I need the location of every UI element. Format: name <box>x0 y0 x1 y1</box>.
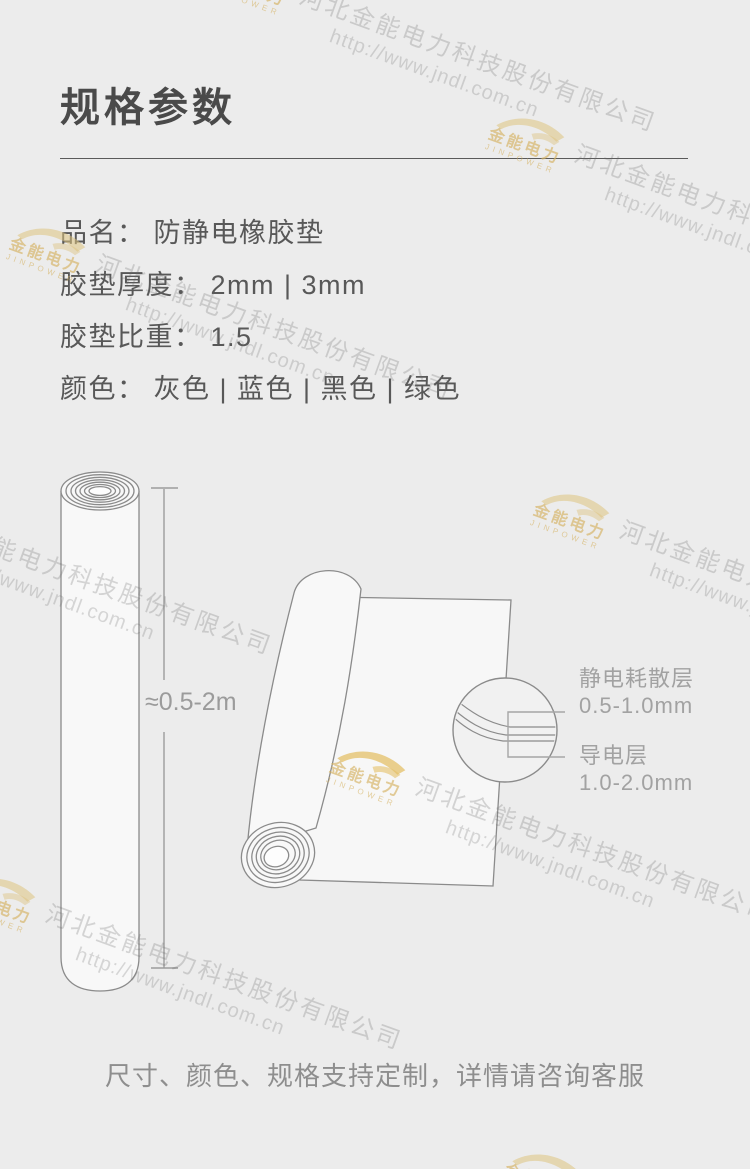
watermark-url-text: http://www.jndl.com.cn <box>601 182 750 321</box>
customization-note: 尺寸、颜色、规格支持定制，详情请咨询客服 <box>0 1058 750 1094</box>
layer-range: 1.0-2.0mm <box>579 769 693 796</box>
product-spec-page: 规格参数 品名：防静电橡胶垫 胶垫厚度：2mm | 3mm 胶垫比重：1.5 颜… <box>0 0 750 1169</box>
spec-label: 胶垫厚度： <box>60 270 203 300</box>
watermark-company-text: 河北金能电力科技股份有限公司 <box>570 141 750 297</box>
spec-label: 胶垫比重： <box>60 322 203 352</box>
spec-label: 品名： <box>60 218 146 248</box>
spec-value: 1.5 <box>211 322 253 352</box>
standing-roll-drawing <box>61 472 139 991</box>
jinpower-logo-icon: 金能电力 JINPOWER <box>495 1136 592 1169</box>
spec-row-thickness: 胶垫厚度：2mm | 3mm <box>60 271 461 300</box>
watermark-company-text: 河北金能电力科技股份有限公司 <box>295 0 660 138</box>
watermark-url-text: http://www.jndl.com.cn <box>326 24 651 163</box>
layer-annotation-dissipative: 静电耗散层 0.5-1.0mm <box>579 665 694 719</box>
length-dimension-line <box>151 488 178 968</box>
layer-name: 静电耗散层 <box>579 665 694 692</box>
length-dimension-label: ≈0.5-2m <box>145 688 237 717</box>
spec-label: 颜色： <box>60 374 146 404</box>
jinpower-logo-icon: 金能电力 JINPOWER <box>204 0 301 21</box>
product-diagram: ≈0.5-2m 静电耗散层 0.5-1.0mm 导电层 1.0-2.0mm <box>0 440 750 1010</box>
spec-value: 2mm | 3mm <box>211 270 367 300</box>
spec-row-density: 胶垫比重：1.5 <box>60 323 461 352</box>
page-title: 规格参数 <box>60 84 236 132</box>
mat-line-drawing <box>0 440 750 1010</box>
jinpower-logo-icon: 金能电力 JINPOWER <box>479 100 576 179</box>
watermark-tile: 金能电力 JINPOWER 河北金能电力科技股份有限公司 http://www.… <box>475 100 750 321</box>
watermark-tile: 金能电力 JINPOWER 河北金能电力科技股份有限公司 http://www.… <box>491 1136 750 1169</box>
layer-range: 0.5-1.0mm <box>579 692 694 719</box>
layer-name: 导电层 <box>579 742 693 769</box>
title-divider <box>60 158 688 159</box>
spec-row-colors: 颜色：灰色 | 蓝色 | 黑色 | 绿色 <box>60 375 461 404</box>
spec-row-product-name: 品名：防静电橡胶垫 <box>60 219 461 248</box>
spec-value: 灰色 | 蓝色 | 黑色 | 绿色 <box>154 374 462 404</box>
watermark-tile: 金能电力 JINPOWER 河北金能电力科技股份有限公司 http://www.… <box>200 0 664 163</box>
layer-annotation-conductive: 导电层 1.0-2.0mm <box>579 742 693 796</box>
spec-list: 品名：防静电橡胶垫 胶垫厚度：2mm | 3mm 胶垫比重：1.5 颜色：灰色 … <box>60 219 461 427</box>
spec-value: 防静电橡胶垫 <box>154 218 325 248</box>
